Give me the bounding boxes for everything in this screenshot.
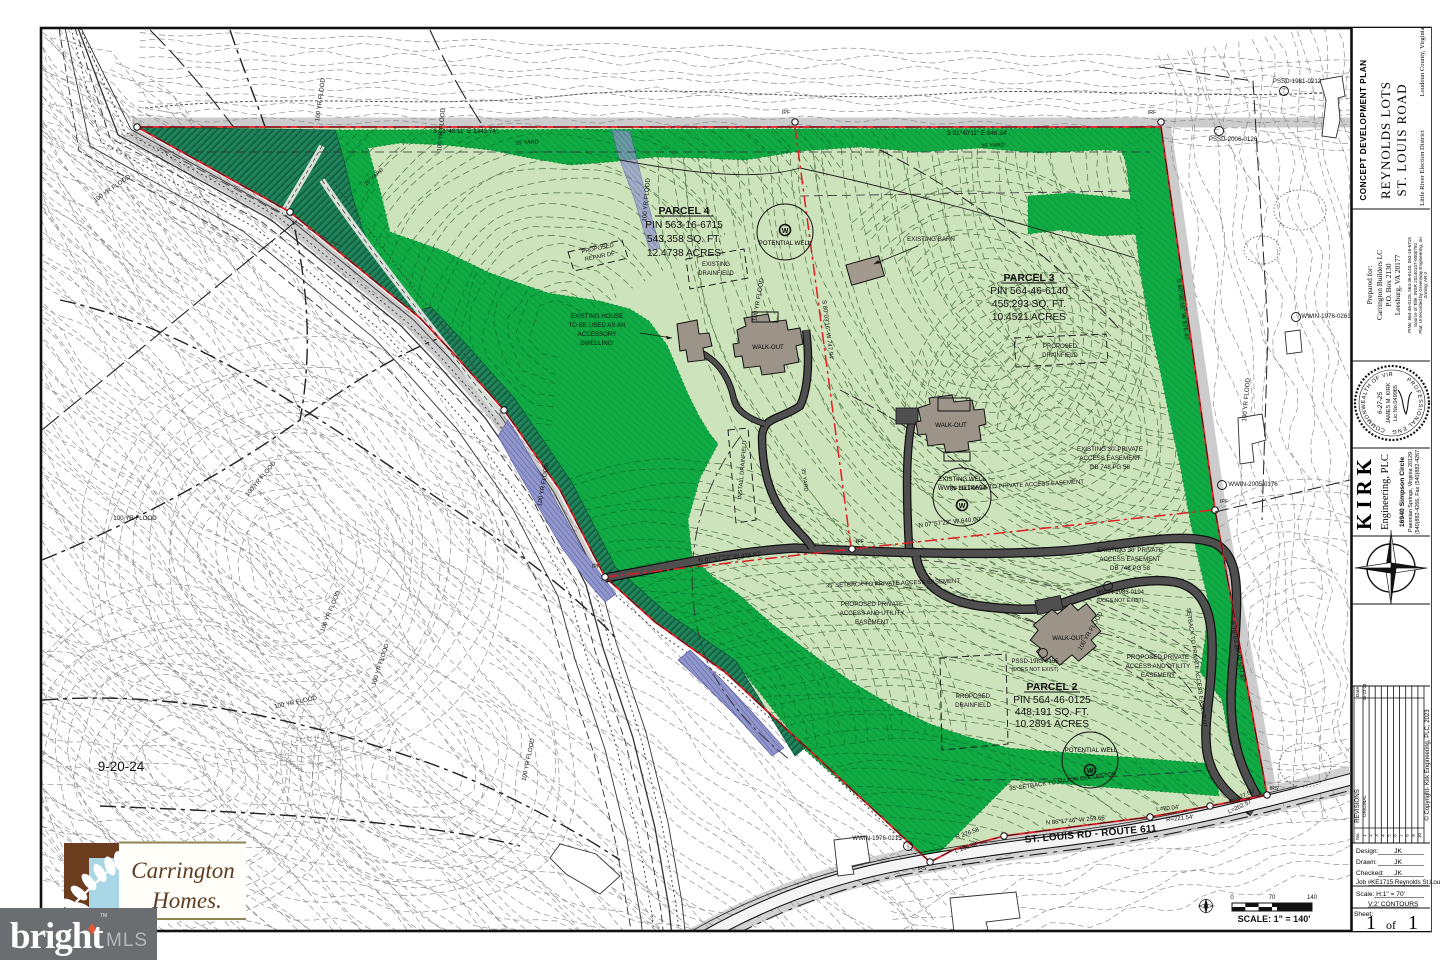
svg-text:DB 748 PG 58: DB 748 PG 58 (1090, 464, 1130, 471)
svg-text:448,191 SQ. FT.: 448,191 SQ. FT. (1015, 707, 1089, 718)
svg-text:Homes.: Homes. (151, 888, 222, 913)
svg-text:WWIN-2005-0176: WWIN-2005-0176 (1228, 481, 1278, 488)
svg-text:PARCEL 3: PARCEL 3 (1004, 272, 1055, 284)
svg-text:6-27-25: 6-27-25 (1377, 392, 1384, 414)
svg-text:ACCESS AND UTILITY: ACCESS AND UTILITY (1126, 663, 1191, 670)
svg-text:EXISTING BARN: EXISTING BARN (907, 236, 955, 243)
svg-text:ACCESS EASEMENT: ACCESS EASEMENT (1099, 556, 1160, 563)
svg-text:PARCEL 2: PARCEL 2 (1027, 681, 1078, 693)
svg-text:ACCESS EASEMENT: ACCESS EASEMENT (1079, 455, 1140, 462)
svg-text:1: 1 (1408, 912, 1418, 934)
svg-text:DRAINFIELD: DRAINFIELD (698, 271, 734, 277)
svg-text:IPF: IPF (1220, 499, 1228, 505)
svg-text:9-20-24: 9-20-24 (98, 759, 145, 774)
svg-text:PSSD-1981-0212: PSSD-1981-0212 (1273, 78, 1322, 85)
svg-text:WWIN-1976-0215: WWIN-1976-0215 (852, 835, 902, 842)
svg-text:Little River Election Distr: Little River Election District (1419, 130, 1426, 206)
svg-text:PROPOSED PRIVATE: PROPOSED PRIVATE (1127, 654, 1189, 661)
svg-text:POTENTIAL WELL: POTENTIAL WELL (759, 240, 812, 247)
svg-text:P.O. Box 2130: P.O. Box 2130 (1384, 263, 1393, 306)
svg-text:WALK-OUT: WALK-OUT (752, 345, 784, 351)
svg-text:DRAINFIELD: DRAINFIELD (955, 703, 991, 709)
svg-text:70: 70 (1269, 895, 1276, 901)
svg-text:EXISTING: EXISTING (702, 262, 730, 268)
svg-text:JK: JK (1394, 859, 1402, 866)
svg-text:ST. LOUIS ROAD: ST. LOUIS ROAD (1394, 83, 1409, 196)
svg-text:455,293 SQ. FT.: 455,293 SQ. FT. (992, 299, 1066, 310)
svg-text:TO BE USED AS AN: TO BE USED AS AN (569, 322, 626, 329)
svg-text:140: 140 (1307, 895, 1318, 901)
svg-text:ORIGINAL: ORIGINAL (1362, 795, 1367, 817)
svg-text:PIN 563-16-6715: PIN 563-16-6715 (645, 220, 723, 231)
svg-text:No.: No. (1355, 832, 1361, 839)
svg-text:CONCEPT DEVELOPMENT PLAN: CONCEPT DEVELOPMENT PLAN (1359, 59, 1368, 200)
svg-text:Paeonian Springs, Virginia 201: Paeonian Springs, Virginia 20129 (1408, 452, 1414, 532)
svg-text:KIRK: KIRK (1352, 454, 1376, 530)
svg-text:bright: bright (10, 916, 104, 957)
svg-text:25' YARD: 25' YARD (515, 139, 539, 146)
svg-text:IRS: IRS (1270, 786, 1279, 792)
svg-text:543,358 SQ. FT.: 543,358 SQ. FT. (647, 234, 721, 245)
svg-text:16940 Simpson Circle: 16940 Simpson Circle (1399, 457, 1406, 527)
svg-text:(DOES NOT EXIST): (DOES NOT EXIST) (1012, 667, 1059, 673)
svg-text:06-23-23: 06-23-23 (1362, 683, 1367, 700)
svg-text:PINs: 564-46-0125, 564-46-6140: PINs: 564-46-0125, 564-46-6140, 563-16-6… (1407, 237, 1412, 333)
svg-text:Design:: Design: (1356, 848, 1379, 855)
svg-text:EXISTING HOUSE: EXISTING HOUSE (571, 313, 624, 320)
svg-text:Scale: H:1" = 70': Scale: H:1" = 70' (1356, 891, 1405, 898)
svg-text:SCALE: 1" = 140': SCALE: 1" = 140' (1238, 914, 1311, 924)
svg-text:W: W (959, 503, 966, 510)
svg-text:EASEMENT: EASEMENT (855, 619, 889, 626)
svg-text:DRAINFIELD: DRAINFIELD (1042, 353, 1078, 359)
svg-text:25' YARD: 25' YARD (981, 142, 1005, 149)
svg-text:Zoning: AR-2: Zoning: AR-2 (1423, 271, 1428, 298)
svg-text:10.2891 ACRES: 10.2891 ACRES (1015, 719, 1089, 730)
svg-text:EASEMENT: EASEMENT (1141, 672, 1175, 679)
svg-text:JK: JK (1394, 848, 1402, 855)
svg-text:POTENTIAL WELL: POTENTIAL WELL (1065, 747, 1118, 754)
svg-text:Prepared for:: Prepared for: (1365, 266, 1374, 305)
svg-text:JK: JK (1394, 870, 1402, 877)
svg-text:JAMES M. KIRK: JAMES M. KIRK (1386, 382, 1392, 423)
svg-text:IPF: IPF (782, 110, 790, 116)
svg-text:PIN 564-46-0125: PIN 564-46-0125 (1013, 695, 1091, 706)
svg-text:1: 1 (1366, 912, 1376, 934)
svg-text:IRF: IRF (1148, 110, 1156, 116)
svg-text:10: 10 (1417, 833, 1422, 839)
svg-text:WALK-OUT: WALK-OUT (1052, 636, 1084, 642)
svg-text:ACCESS AND UTILITY: ACCESS AND UTILITY (840, 610, 905, 617)
svg-text:12.4738 ACRES: 12.4738 ACRES (647, 248, 721, 259)
svg-text:PIN 564-46-6140: PIN 564-46-6140 (990, 286, 1068, 297)
svg-text:TM: TM (100, 913, 107, 919)
svg-text:Loudoun County, Virginia: Loudoun County, Virginia (1419, 27, 1426, 96)
svg-text:Leesburg, VA 20177: Leesburg, VA 20177 (1393, 254, 1402, 315)
svg-text:EXISTING 30' PRIVATE: EXISTING 30' PRIVATE (1077, 446, 1143, 453)
svg-text:© Copyright- Kirk Engineerin: © Copyright- Kirk Engineering, PLC, 2023 (1424, 709, 1431, 821)
svg-text:Drawn:: Drawn: (1356, 859, 1377, 866)
svg-text:Carrington: Carrington (131, 858, 235, 883)
svg-text:PROPOSED: PROPOSED (1043, 344, 1078, 350)
svg-text:REVISIONS: REVISIONS (1354, 789, 1361, 823)
svg-text:EXISTING WELL: EXISTING WELL (938, 476, 986, 483)
svg-text:PSSD-2006-0126: PSSD-2006-0126 (1209, 136, 1258, 143)
svg-text:(DOES NOT EXIST): (DOES NOT EXIST) (1097, 598, 1144, 604)
svg-text:WWIN-1976-0261: WWIN-1976-0261 (1301, 313, 1351, 320)
svg-text:PROPOSED: PROPOSED (956, 694, 991, 700)
svg-text:DB 748 PG 58: DB 748 PG 58 (1110, 565, 1150, 572)
svg-text:100 YR FLOOD: 100 YR FLOOD (113, 515, 157, 522)
svg-text:of: of (1386, 918, 1396, 932)
svg-text:REYNOLDS LOTS: REYNOLDS LOTS (1378, 81, 1393, 199)
svg-text:Job #KE1715 Reynolds St.Louis: Job #KE1715 Reynolds St.Louis (1356, 879, 1440, 886)
svg-text:EXISTING 30' PRIVATE: EXISTING 30' PRIVATE (1097, 547, 1163, 554)
svg-text:ACCESSORY: ACCESSORY (578, 331, 617, 338)
svg-text:MLS: MLS (106, 930, 148, 951)
svg-text:PSSD-1983-0155: PSSD-1983-0155 (1011, 659, 1059, 665)
svg-text:10.4521 ACRES: 10.4521 ACRES (992, 312, 1066, 323)
svg-text:IRS: IRS (918, 866, 927, 872)
svg-text:DWELLING': DWELLING' (580, 340, 614, 347)
svg-text:PROPOSED PRIVATE: PROPOSED PRIVATE (841, 601, 903, 608)
svg-text:Carrington Builders LC: Carrington Builders LC (1375, 250, 1384, 320)
svg-text:IPF: IPF (592, 564, 600, 570)
svg-text:W: W (782, 228, 789, 235)
svg-text:WWIN-1983-0194: WWIN-1983-0194 (1096, 590, 1145, 596)
svg-text:S 01°40'11" E 646.34': S 01°40'11" E 646.34' (947, 129, 1008, 137)
svg-text:(540)882-4266, Fax (540)882-42: (540)882-4266, Fax (540)882-4267 (1415, 450, 1421, 534)
svg-text:WALK-OUT: WALK-OUT (935, 423, 967, 429)
svg-text:Engineering, PLC: Engineering, PLC (1380, 454, 1391, 530)
svg-text:IPF: IPF (856, 539, 864, 545)
svg-text:PARCEL 4: PARCEL 4 (659, 205, 710, 217)
svg-text:Checked:: Checked: (1356, 870, 1384, 877)
svg-text:Date: Date (1355, 687, 1361, 697)
